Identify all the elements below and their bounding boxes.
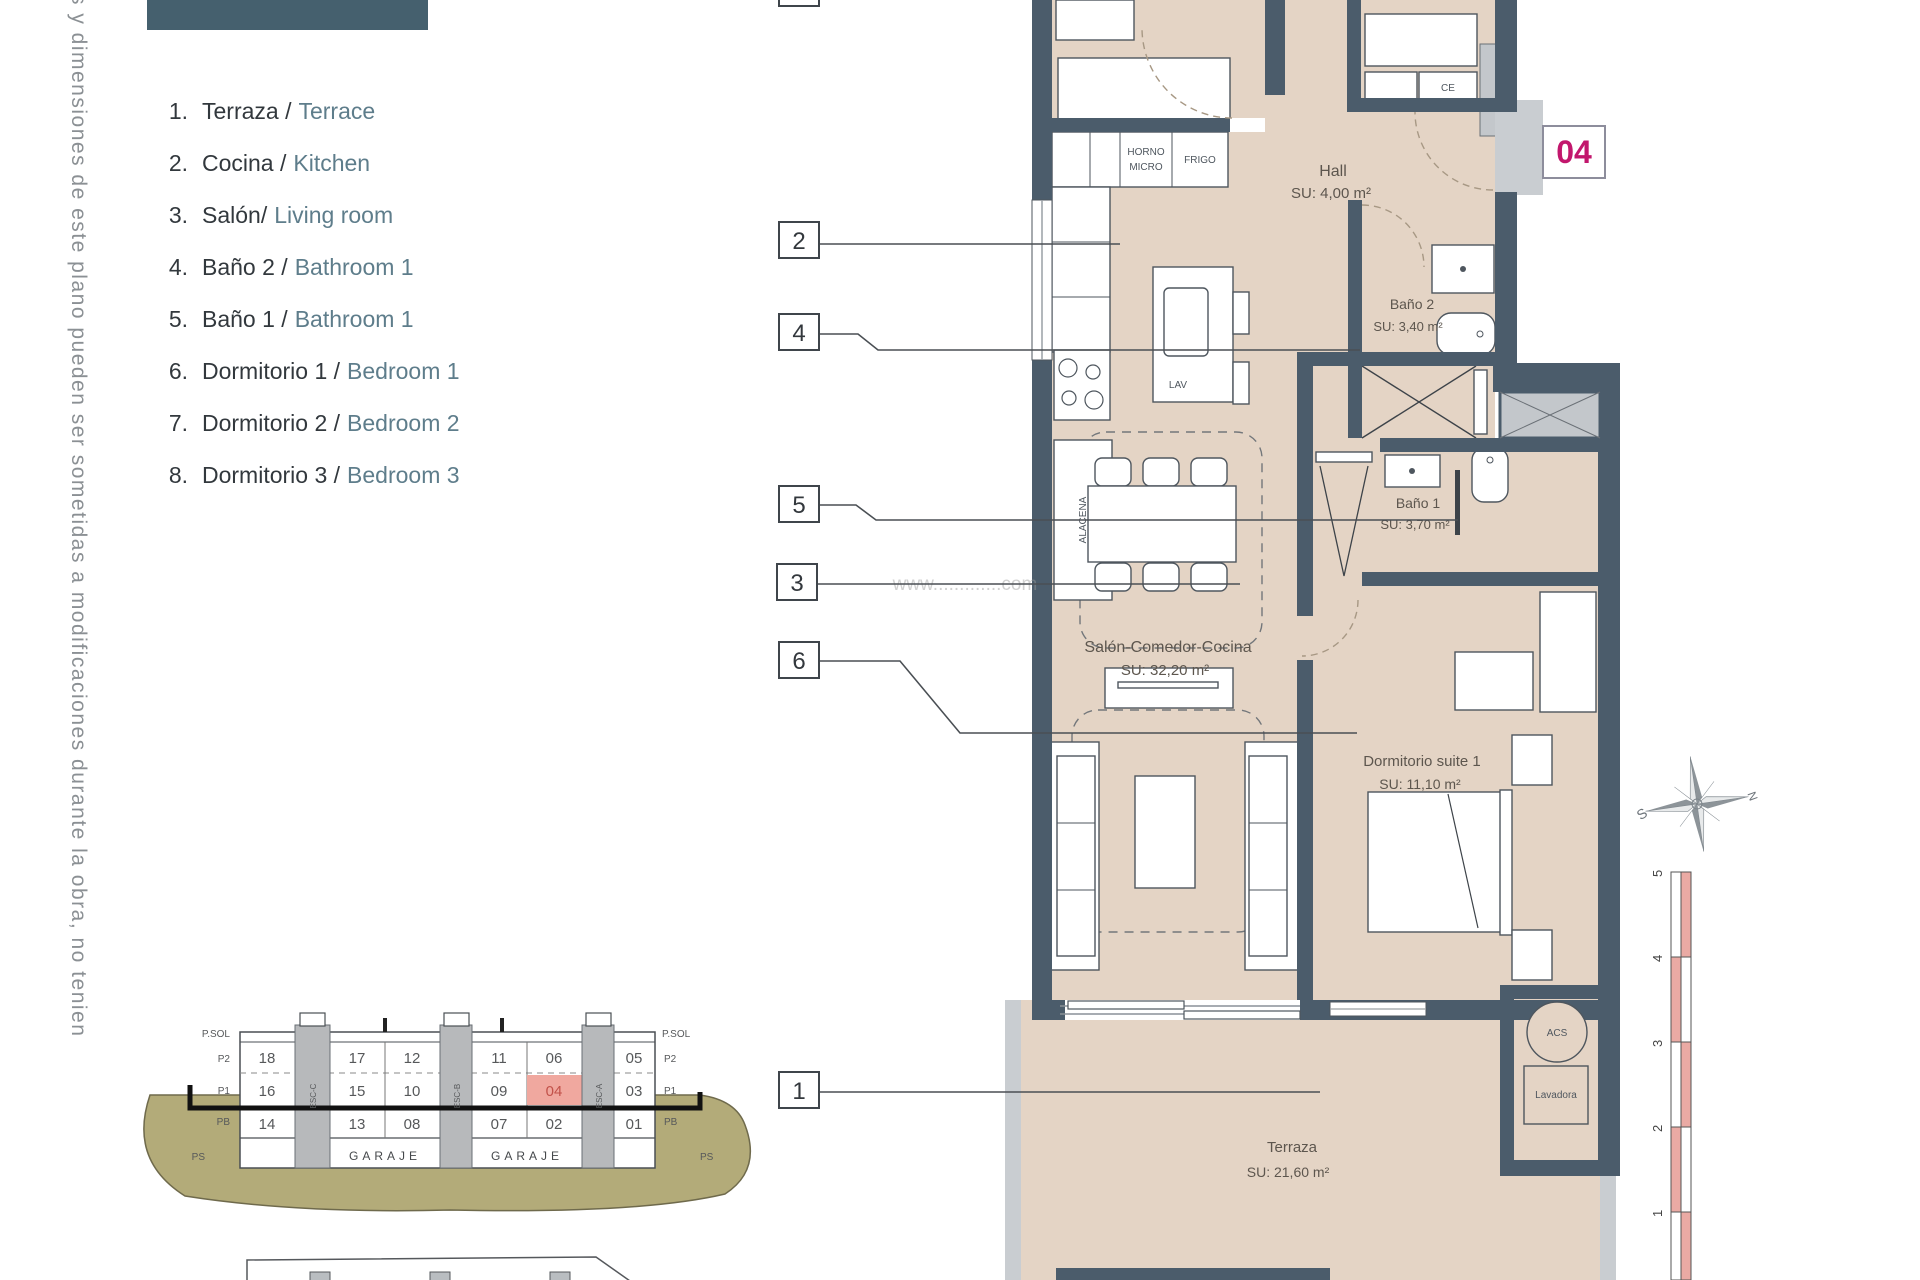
svg-text:ESC-C: ESC-C xyxy=(309,1083,318,1108)
counter xyxy=(1056,0,1134,40)
compass-south: S xyxy=(1634,805,1651,824)
svg-text:1: 1 xyxy=(792,1078,805,1105)
svg-text:18: 18 xyxy=(259,1050,276,1067)
bed xyxy=(1368,792,1508,932)
marker-4: 4 xyxy=(779,314,819,350)
closet-shelf xyxy=(1365,14,1477,66)
building-cross-section: 18 17 12 11 06 05 16 15 10 09 04 03 14 1… xyxy=(144,1013,750,1211)
fridge-label: FRIGO xyxy=(1184,155,1216,166)
svg-text:2: 2 xyxy=(792,228,805,255)
sliding-door xyxy=(1060,1000,1300,1020)
terrace-label: Terraza xyxy=(1267,1139,1318,1156)
svg-text:ESC-B: ESC-B xyxy=(453,1084,462,1108)
nightstand xyxy=(1512,735,1552,785)
hall-wardrobe-shelf xyxy=(1316,452,1372,462)
svg-text:P.SOL: P.SOL xyxy=(202,1029,231,1040)
unit-number: 04 xyxy=(1556,134,1592,170)
suite-area: SU: 11,10 m² xyxy=(1379,776,1461,792)
svg-text:10: 10 xyxy=(404,1083,421,1100)
towel-rail xyxy=(1455,470,1460,535)
svg-text:4: 4 xyxy=(792,320,805,347)
marker-3: 3 xyxy=(777,564,817,600)
suite-window xyxy=(1330,1002,1426,1016)
drawing: HORNO MICRO FRIGO LAV ALACENA xyxy=(0,0,1920,1280)
svg-text:03: 03 xyxy=(626,1083,643,1100)
svg-text:P.SOL: P.SOL xyxy=(662,1029,691,1040)
scale-tick: 1 xyxy=(1650,1210,1665,1217)
marker-6: 6 xyxy=(779,642,819,678)
entrance-door-opening xyxy=(1495,112,1517,192)
chair xyxy=(1095,563,1131,591)
svg-text:GARAJE: GARAJE xyxy=(349,1149,421,1163)
dining-table xyxy=(1088,486,1236,562)
headboard xyxy=(1500,790,1512,935)
scale-tick: 2 xyxy=(1650,1125,1665,1132)
counter-column xyxy=(1052,187,1110,352)
sink-label: LAV xyxy=(1169,380,1187,391)
plan-sheet: s y dimensiones de este plano pueden ser… xyxy=(0,0,1920,1280)
svg-text:ESC-A: ESC-A xyxy=(595,1083,604,1108)
svg-text:6: 6 xyxy=(792,648,805,675)
svg-text:PS: PS xyxy=(700,1152,714,1163)
microwave-label: MICRO xyxy=(1129,162,1163,173)
floor-plan: HORNO MICRO FRIGO LAV ALACENA xyxy=(892,0,1620,1280)
unit-badge: 04 xyxy=(1543,126,1605,178)
terrace-area: SU: 21,60 m² xyxy=(1247,1164,1330,1180)
suite-label: Dormitorio suite 1 xyxy=(1363,753,1481,770)
svg-text:PB: PB xyxy=(217,1117,231,1128)
chair xyxy=(1095,458,1131,486)
svg-text:05: 05 xyxy=(626,1050,643,1067)
scale-tick: 5 xyxy=(1650,870,1665,877)
entrance-landing xyxy=(1517,100,1543,195)
bath1-label: Baño 1 xyxy=(1396,495,1441,511)
bath1-toilet xyxy=(1472,448,1508,502)
bath2-label: Baño 2 xyxy=(1390,296,1435,312)
sofa-cushions xyxy=(1249,756,1287,956)
hall-area: SU: 4,00 m² xyxy=(1291,185,1371,202)
island-stool xyxy=(1233,362,1249,404)
salon-area: SU: 32,20 m² xyxy=(1121,662,1209,679)
acs-label: ACS xyxy=(1547,1028,1568,1039)
wardrobe-panel xyxy=(1474,370,1487,434)
compass-rose: S N xyxy=(1627,748,1766,861)
svg-text:5: 5 xyxy=(792,492,805,519)
svg-text:GARAJE: GARAJE xyxy=(491,1149,563,1163)
bath2-toilet xyxy=(1437,313,1495,355)
tv xyxy=(1118,682,1218,688)
coffee-table xyxy=(1135,776,1195,888)
svg-text:P1: P1 xyxy=(664,1086,677,1097)
lavadora-label: Lavadora xyxy=(1535,1090,1577,1101)
chair xyxy=(1143,458,1179,486)
svg-text:PB: PB xyxy=(664,1117,678,1128)
svg-text:16: 16 xyxy=(259,1083,276,1100)
svg-text:13: 13 xyxy=(349,1116,366,1133)
chair xyxy=(1191,458,1227,486)
svg-text:09: 09 xyxy=(491,1083,508,1100)
svg-text:14: 14 xyxy=(259,1116,276,1133)
scale-tick: 4 xyxy=(1650,955,1665,962)
door-opening xyxy=(1230,118,1265,132)
svg-text:PS: PS xyxy=(192,1152,206,1163)
counter xyxy=(1058,58,1230,120)
highlighted-unit-number: 04 xyxy=(546,1083,563,1100)
svg-text:12: 12 xyxy=(404,1050,421,1067)
bath2-area: SU: 3,40 m² xyxy=(1373,319,1443,334)
hall-label: Hall xyxy=(1319,163,1347,180)
ce-label: CE xyxy=(1441,83,1455,94)
chair xyxy=(1143,563,1179,591)
svg-text:15: 15 xyxy=(349,1083,366,1100)
island-sink xyxy=(1164,288,1208,356)
closet-shelf xyxy=(1365,72,1417,102)
suite-cabinet xyxy=(1540,592,1596,712)
scale-bar: 5 4 3 2 1 xyxy=(1650,870,1691,1280)
suite-wardrobe xyxy=(1455,652,1533,710)
marker-1: 1 xyxy=(779,1072,819,1108)
marker-2: 2 xyxy=(779,222,819,258)
svg-text:07: 07 xyxy=(491,1116,508,1133)
chair xyxy=(1191,563,1227,591)
svg-text:01: 01 xyxy=(626,1116,643,1133)
svg-text:02: 02 xyxy=(546,1116,563,1133)
nightstand xyxy=(1512,930,1552,980)
svg-text:17: 17 xyxy=(349,1050,366,1067)
svg-text:P2: P2 xyxy=(664,1054,677,1065)
svg-text:11: 11 xyxy=(491,1050,507,1067)
svg-text:P1: P1 xyxy=(218,1086,231,1097)
site-plan-partial xyxy=(247,1257,630,1280)
sofa-cushions xyxy=(1057,756,1095,956)
svg-text:P2: P2 xyxy=(218,1054,231,1065)
svg-text:06: 06 xyxy=(546,1050,563,1067)
window xyxy=(1032,200,1052,360)
island-stool xyxy=(1233,292,1249,334)
marker-box-cut xyxy=(779,0,819,6)
oven-label: HORNO xyxy=(1127,147,1164,158)
scale-tick: 3 xyxy=(1650,1040,1665,1047)
marker-5: 5 xyxy=(779,486,819,522)
salon-label: Salón-Comedor-Cocina xyxy=(1084,639,1251,656)
compass-north: N xyxy=(1744,790,1760,803)
svg-text:3: 3 xyxy=(790,570,803,597)
svg-text:08: 08 xyxy=(404,1116,421,1133)
